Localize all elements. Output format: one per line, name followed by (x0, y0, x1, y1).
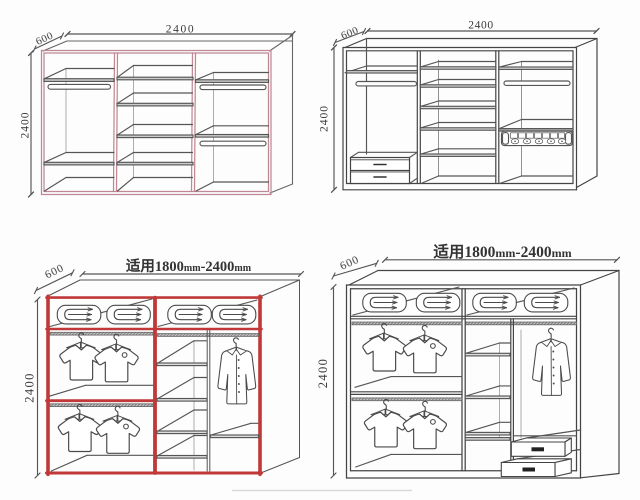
svg-text:2400: 2400 (20, 112, 32, 139)
svg-text:2400: 2400 (319, 105, 331, 132)
svg-text:2400: 2400 (23, 372, 37, 403)
svg-text:适用1800mm-2400mm: 适用1800mm-2400mm (433, 243, 571, 261)
svg-text:2400: 2400 (316, 358, 330, 389)
svg-text:2400: 2400 (166, 24, 195, 36)
svg-text:2400: 2400 (468, 20, 493, 32)
